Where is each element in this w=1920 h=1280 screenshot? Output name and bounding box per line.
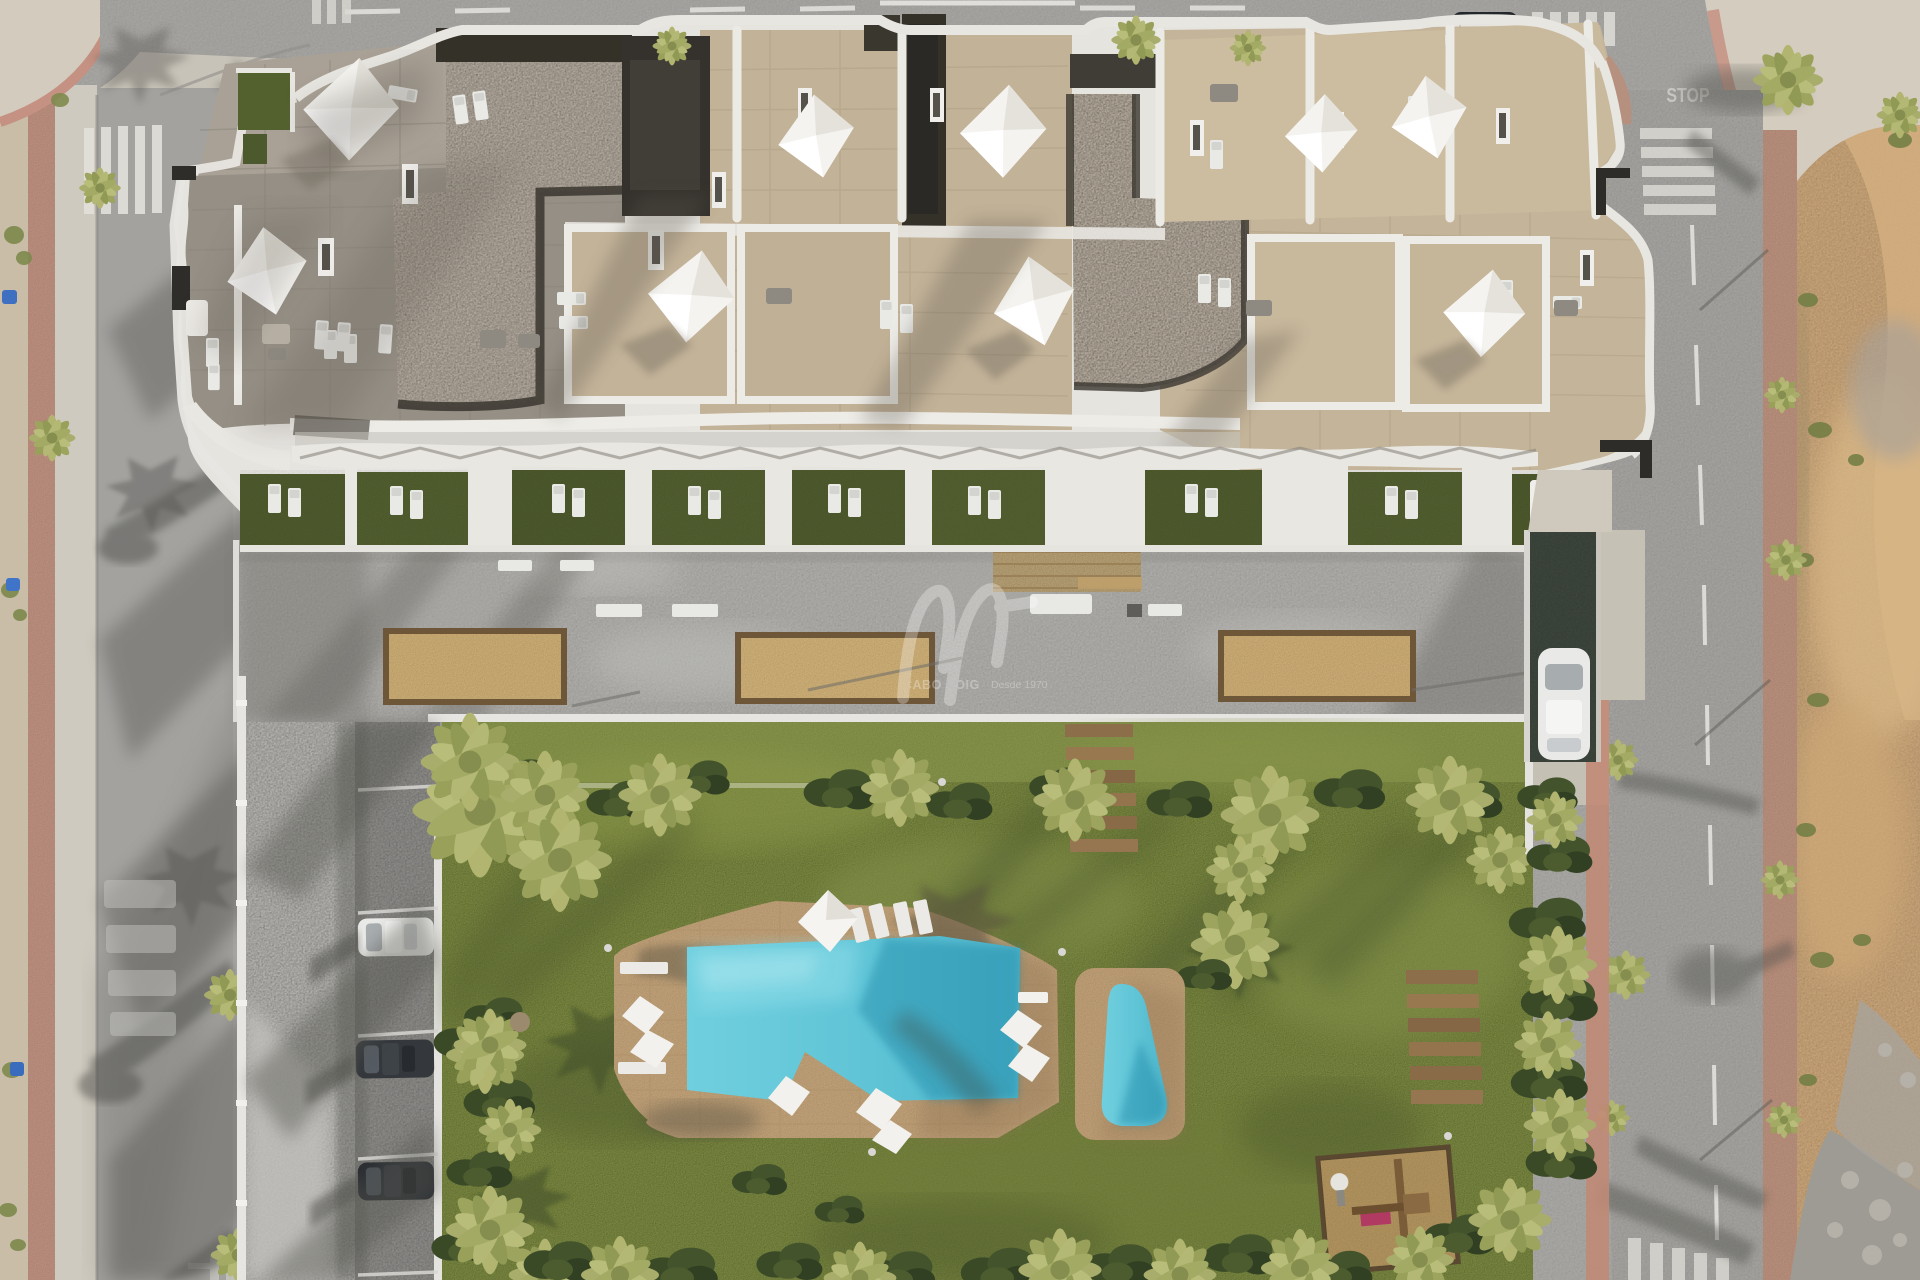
svg-text:Desde 1970: Desde 1970 — [991, 679, 1048, 691]
svg-text:CABO ROIG: CABO ROIG — [903, 678, 980, 692]
